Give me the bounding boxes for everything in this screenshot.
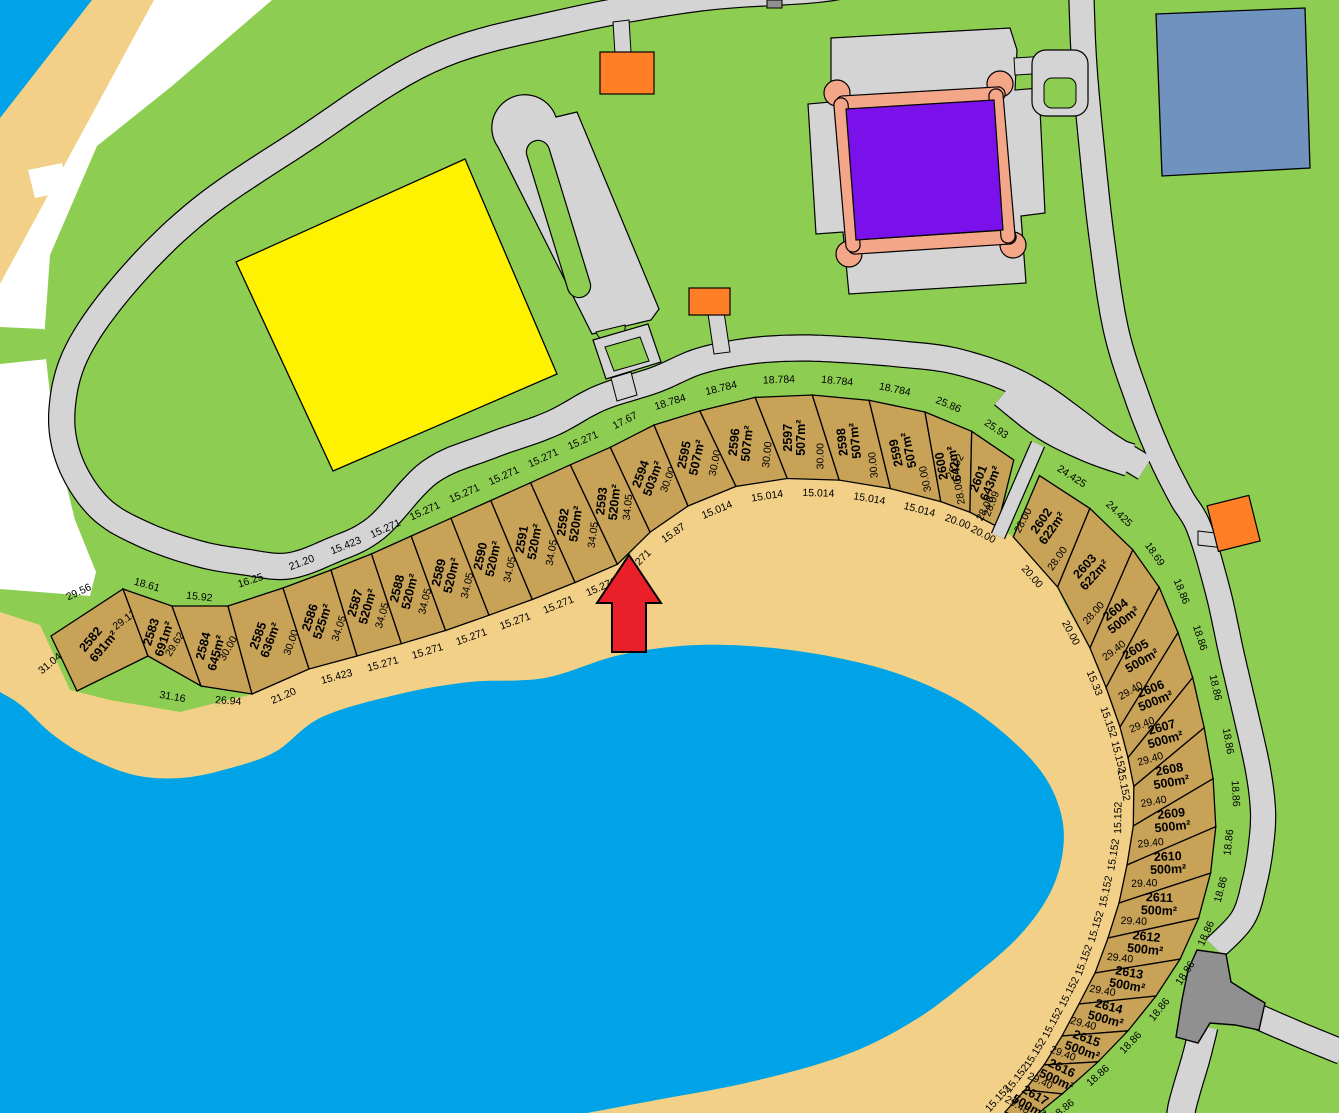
svg-text:29.40: 29.40 <box>1131 877 1158 890</box>
svg-text:26.94: 26.94 <box>215 694 242 708</box>
svg-text:29.40: 29.40 <box>1120 915 1147 928</box>
svg-text:15.014: 15.014 <box>802 487 835 500</box>
svg-text:18.86: 18.86 <box>1229 780 1242 807</box>
svg-text:18.784: 18.784 <box>763 373 796 386</box>
svg-text:500m²: 500m² <box>1150 862 1187 877</box>
svg-text:30.00: 30.00 <box>815 443 827 469</box>
svg-text:15.152: 15.152 <box>1112 801 1124 833</box>
svg-text:507m²: 507m² <box>794 420 808 456</box>
svg-text:2597: 2597 <box>781 424 795 452</box>
